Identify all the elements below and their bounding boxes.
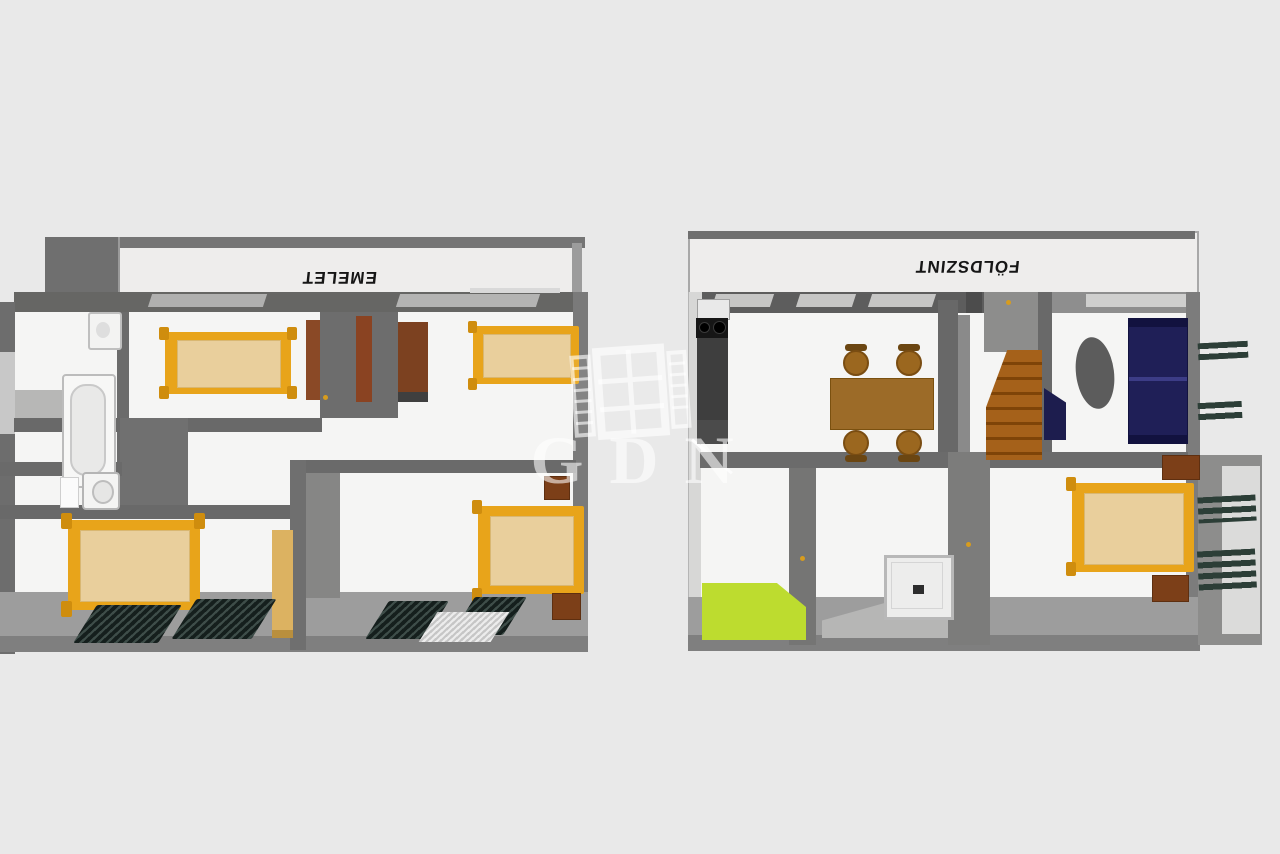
- door-handle-dot-4: [966, 542, 971, 547]
- ground-back-window-2: [796, 294, 856, 307]
- ground-back-window-4: [1086, 294, 1186, 307]
- kitchen-right-wall-face: [958, 315, 970, 460]
- bath-bedroom-divider-wall: [948, 452, 990, 645]
- sofa-armrest: [1129, 435, 1187, 443]
- screenshot-canvas: EMELET: [0, 0, 1280, 854]
- shower-tray: [884, 555, 954, 620]
- dining-chair: [843, 350, 869, 376]
- ground-back-window-3: [868, 294, 936, 307]
- kitchen-sink-unit: [697, 299, 730, 320]
- dining-table: [830, 378, 934, 430]
- dining-chair: [896, 430, 922, 456]
- stove-burner: [713, 321, 726, 334]
- kitchen-stove: [696, 318, 728, 338]
- bed-ground-mattress: [1084, 493, 1184, 565]
- stove-burner: [699, 322, 710, 333]
- kitchen-counter-low: [697, 420, 728, 444]
- window-shutter: [1198, 401, 1243, 421]
- ground-middle-wall: [700, 452, 1188, 468]
- chair-back: [898, 455, 920, 462]
- nightstand: [1152, 575, 1189, 602]
- door-handle-dot-3: [800, 556, 805, 561]
- sofa: [1128, 318, 1188, 444]
- dining-chair: [843, 430, 869, 456]
- sofa-armrest: [1129, 319, 1187, 327]
- ground-band-top-wall: [688, 231, 1195, 239]
- sofa-seam: [1129, 377, 1187, 381]
- door-handle-dot-2: [1006, 300, 1011, 305]
- bed-ground-post: [1066, 562, 1076, 576]
- window-shutter: [1198, 341, 1249, 361]
- dining-chair: [896, 350, 922, 376]
- window-shutter: [1197, 549, 1257, 594]
- chair-back: [845, 455, 867, 462]
- ground-floor-plan: FÖLDSZINT: [0, 0, 1280, 854]
- shower-drain: [913, 585, 924, 594]
- nightstand: [1162, 455, 1200, 480]
- hall-back-wall-face: [984, 292, 1038, 352]
- kitchen-right-wall: [938, 300, 958, 460]
- ground-back-wall-divider: [966, 292, 982, 313]
- window-shutter: [1197, 495, 1256, 524]
- bed-ground-post: [1066, 477, 1076, 491]
- ground-floor-label: FÖLDSZINT: [878, 250, 1056, 280]
